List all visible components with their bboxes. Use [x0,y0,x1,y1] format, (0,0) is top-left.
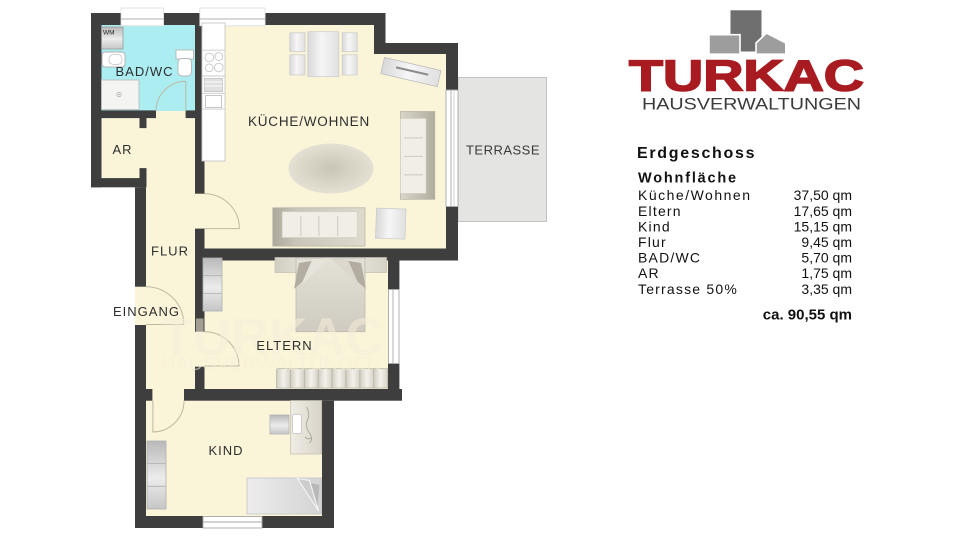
svg-text:HAUSVERWALTUNGEN: HAUSVERWALTUNGEN [642,95,861,114]
svg-text:AR: AR [112,142,132,157]
svg-text:3,35 qm: 3,35 qm [801,281,852,297]
svg-text:17,65 qm: 17,65 qm [794,203,852,219]
svg-text:Erdgeschoss: Erdgeschoss [637,145,756,162]
svg-text:EINGANG: EINGANG [113,304,180,319]
svg-text:Wohnfläche: Wohnfläche [638,171,738,187]
svg-text:TERRASSE: TERRASSE [466,143,540,158]
svg-text:BAD/WC: BAD/WC [116,64,174,79]
svg-text:9,45 qm: 9,45 qm [801,234,852,250]
svg-text:TURKAC: TURKAC [629,52,864,101]
svg-text:FLUR: FLUR [151,244,189,259]
svg-text:Kind: Kind [638,218,671,234]
svg-text:BAD/WC: BAD/WC [638,250,701,266]
svg-text:1,75 qm: 1,75 qm [801,265,852,281]
svg-text:ELTERN: ELTERN [256,338,312,353]
svg-text:Flur: Flur [638,234,667,250]
svg-text:Terrasse 50%: Terrasse 50% [638,281,738,297]
svg-text:AR: AR [638,265,660,281]
svg-text:37,50 qm: 37,50 qm [794,187,852,203]
svg-text:KÜCHE/WOHNEN: KÜCHE/WOHNEN [248,114,370,129]
svg-text:WM: WM [103,30,115,37]
svg-text:Eltern: Eltern [638,203,682,219]
svg-text:HAUSVERWALTUNGEN: HAUSVERWALTUNGEN [161,354,381,374]
svg-text:Küche/Wohnen: Küche/Wohnen [638,187,751,203]
svg-text:ca. 90,55 qm: ca. 90,55 qm [763,307,852,324]
svg-text:KIND: KIND [208,443,243,458]
svg-text:15,15 qm: 15,15 qm [794,218,852,234]
svg-text:5,70 qm: 5,70 qm [801,250,852,266]
